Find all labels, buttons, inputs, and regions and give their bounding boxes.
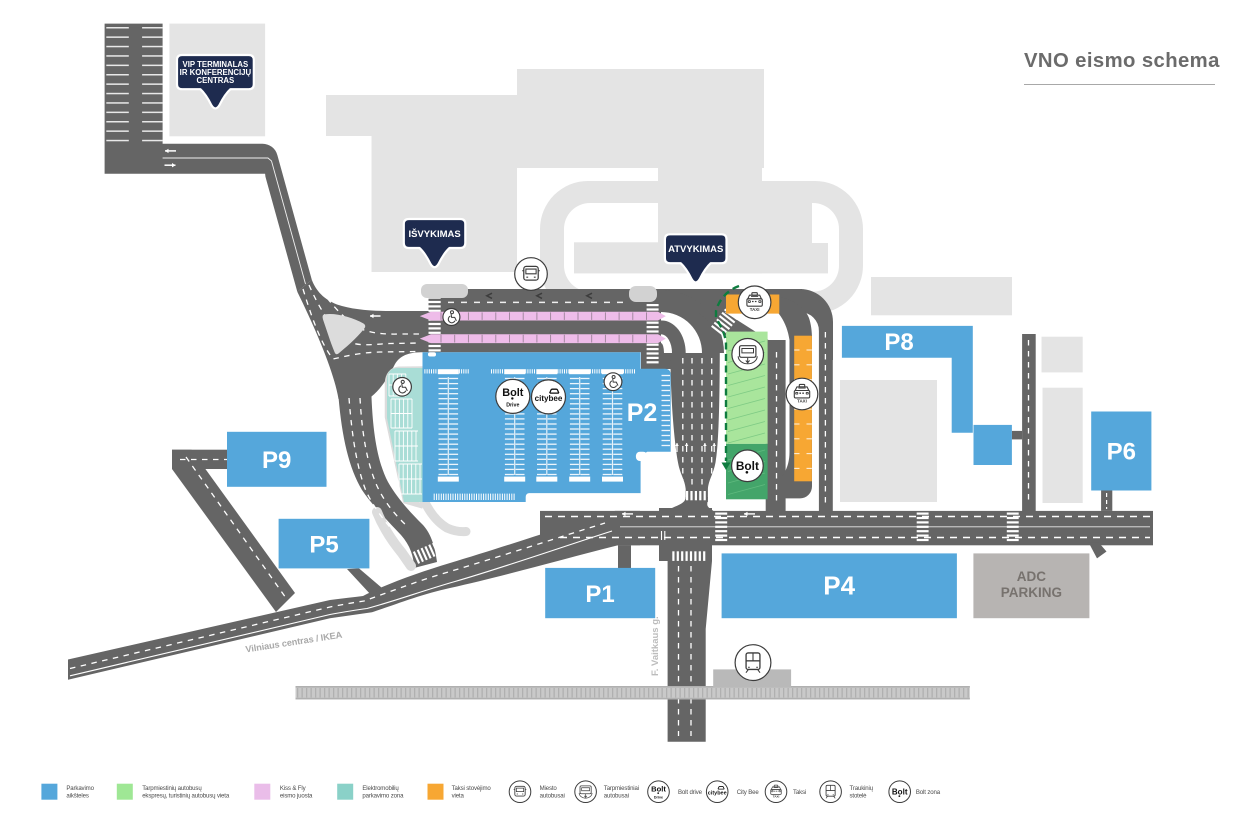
svg-text:P8: P8 xyxy=(884,329,913,356)
svg-text:Traukinių: Traukinių xyxy=(850,785,874,792)
svg-text:citybee: citybee xyxy=(535,394,563,403)
svg-text:Tarpmiestiniai: Tarpmiestiniai xyxy=(604,785,639,792)
svg-text:autobusai: autobusai xyxy=(540,793,565,800)
svg-text:ekspresų, turistinių autobusų: ekspresų, turistinių autobusų vieta xyxy=(142,793,230,800)
svg-text:P5: P5 xyxy=(309,532,338,559)
svg-text:Taksi: Taksi xyxy=(793,789,806,796)
svg-text:Bolt: Bolt xyxy=(736,459,759,473)
svg-text:Elektromobilių: Elektromobilių xyxy=(362,785,399,792)
svg-text:stotelė: stotelė xyxy=(850,793,868,800)
svg-text:City Bee: City Bee xyxy=(737,789,760,796)
svg-text:Bolt: Bolt xyxy=(651,785,666,794)
svg-text:Drive: Drive xyxy=(654,796,663,800)
svg-text:Taksi stovėjimo: Taksi stovėjimo xyxy=(452,785,492,792)
svg-text:VNO eismo schema: VNO eismo schema xyxy=(1024,50,1220,72)
svg-text:vieta: vieta xyxy=(452,793,465,800)
svg-text:parkavimo zona: parkavimo zona xyxy=(362,793,404,800)
svg-text:ADC: ADC xyxy=(1017,569,1046,584)
svg-text:ATVYKIMAS: ATVYKIMAS xyxy=(668,244,723,255)
svg-text:P4: P4 xyxy=(823,571,855,601)
svg-text:eismo juosta: eismo juosta xyxy=(280,793,313,800)
svg-text:Bolt: Bolt xyxy=(892,787,908,796)
svg-text:Bolt drive: Bolt drive xyxy=(678,789,703,796)
svg-text:TAXI: TAXI xyxy=(750,307,760,312)
svg-text:F. Vaitkaus g.: F. Vaitkaus g. xyxy=(650,616,661,676)
svg-text:CENTRAS: CENTRAS xyxy=(197,76,235,85)
svg-text:P6: P6 xyxy=(1107,439,1136,466)
svg-text:Kiss & Fly: Kiss & Fly xyxy=(280,785,307,792)
svg-text:aikšteles: aikšteles xyxy=(66,793,88,800)
svg-text:TAXI: TAXI xyxy=(797,399,807,404)
svg-text:IŠVYKIMAS: IŠVYKIMAS xyxy=(408,228,460,240)
svg-text:P1: P1 xyxy=(585,581,614,608)
svg-text:autobusai: autobusai xyxy=(604,793,629,800)
svg-text:TAXI: TAXI xyxy=(773,795,780,799)
svg-text:Bolt zona: Bolt zona xyxy=(916,789,941,796)
svg-text:Parkavimo: Parkavimo xyxy=(66,785,94,792)
svg-text:citybee: citybee xyxy=(708,790,727,796)
svg-text:P9: P9 xyxy=(262,447,291,474)
svg-text:Miesto: Miesto xyxy=(540,785,558,792)
svg-text:P2: P2 xyxy=(627,399,658,427)
svg-text:Drive: Drive xyxy=(506,403,519,409)
svg-text:PARKING: PARKING xyxy=(1001,585,1062,600)
svg-text:Bolt: Bolt xyxy=(502,387,524,399)
svg-text:Tarpmiestinių autobusų: Tarpmiestinių autobusų xyxy=(142,785,202,792)
